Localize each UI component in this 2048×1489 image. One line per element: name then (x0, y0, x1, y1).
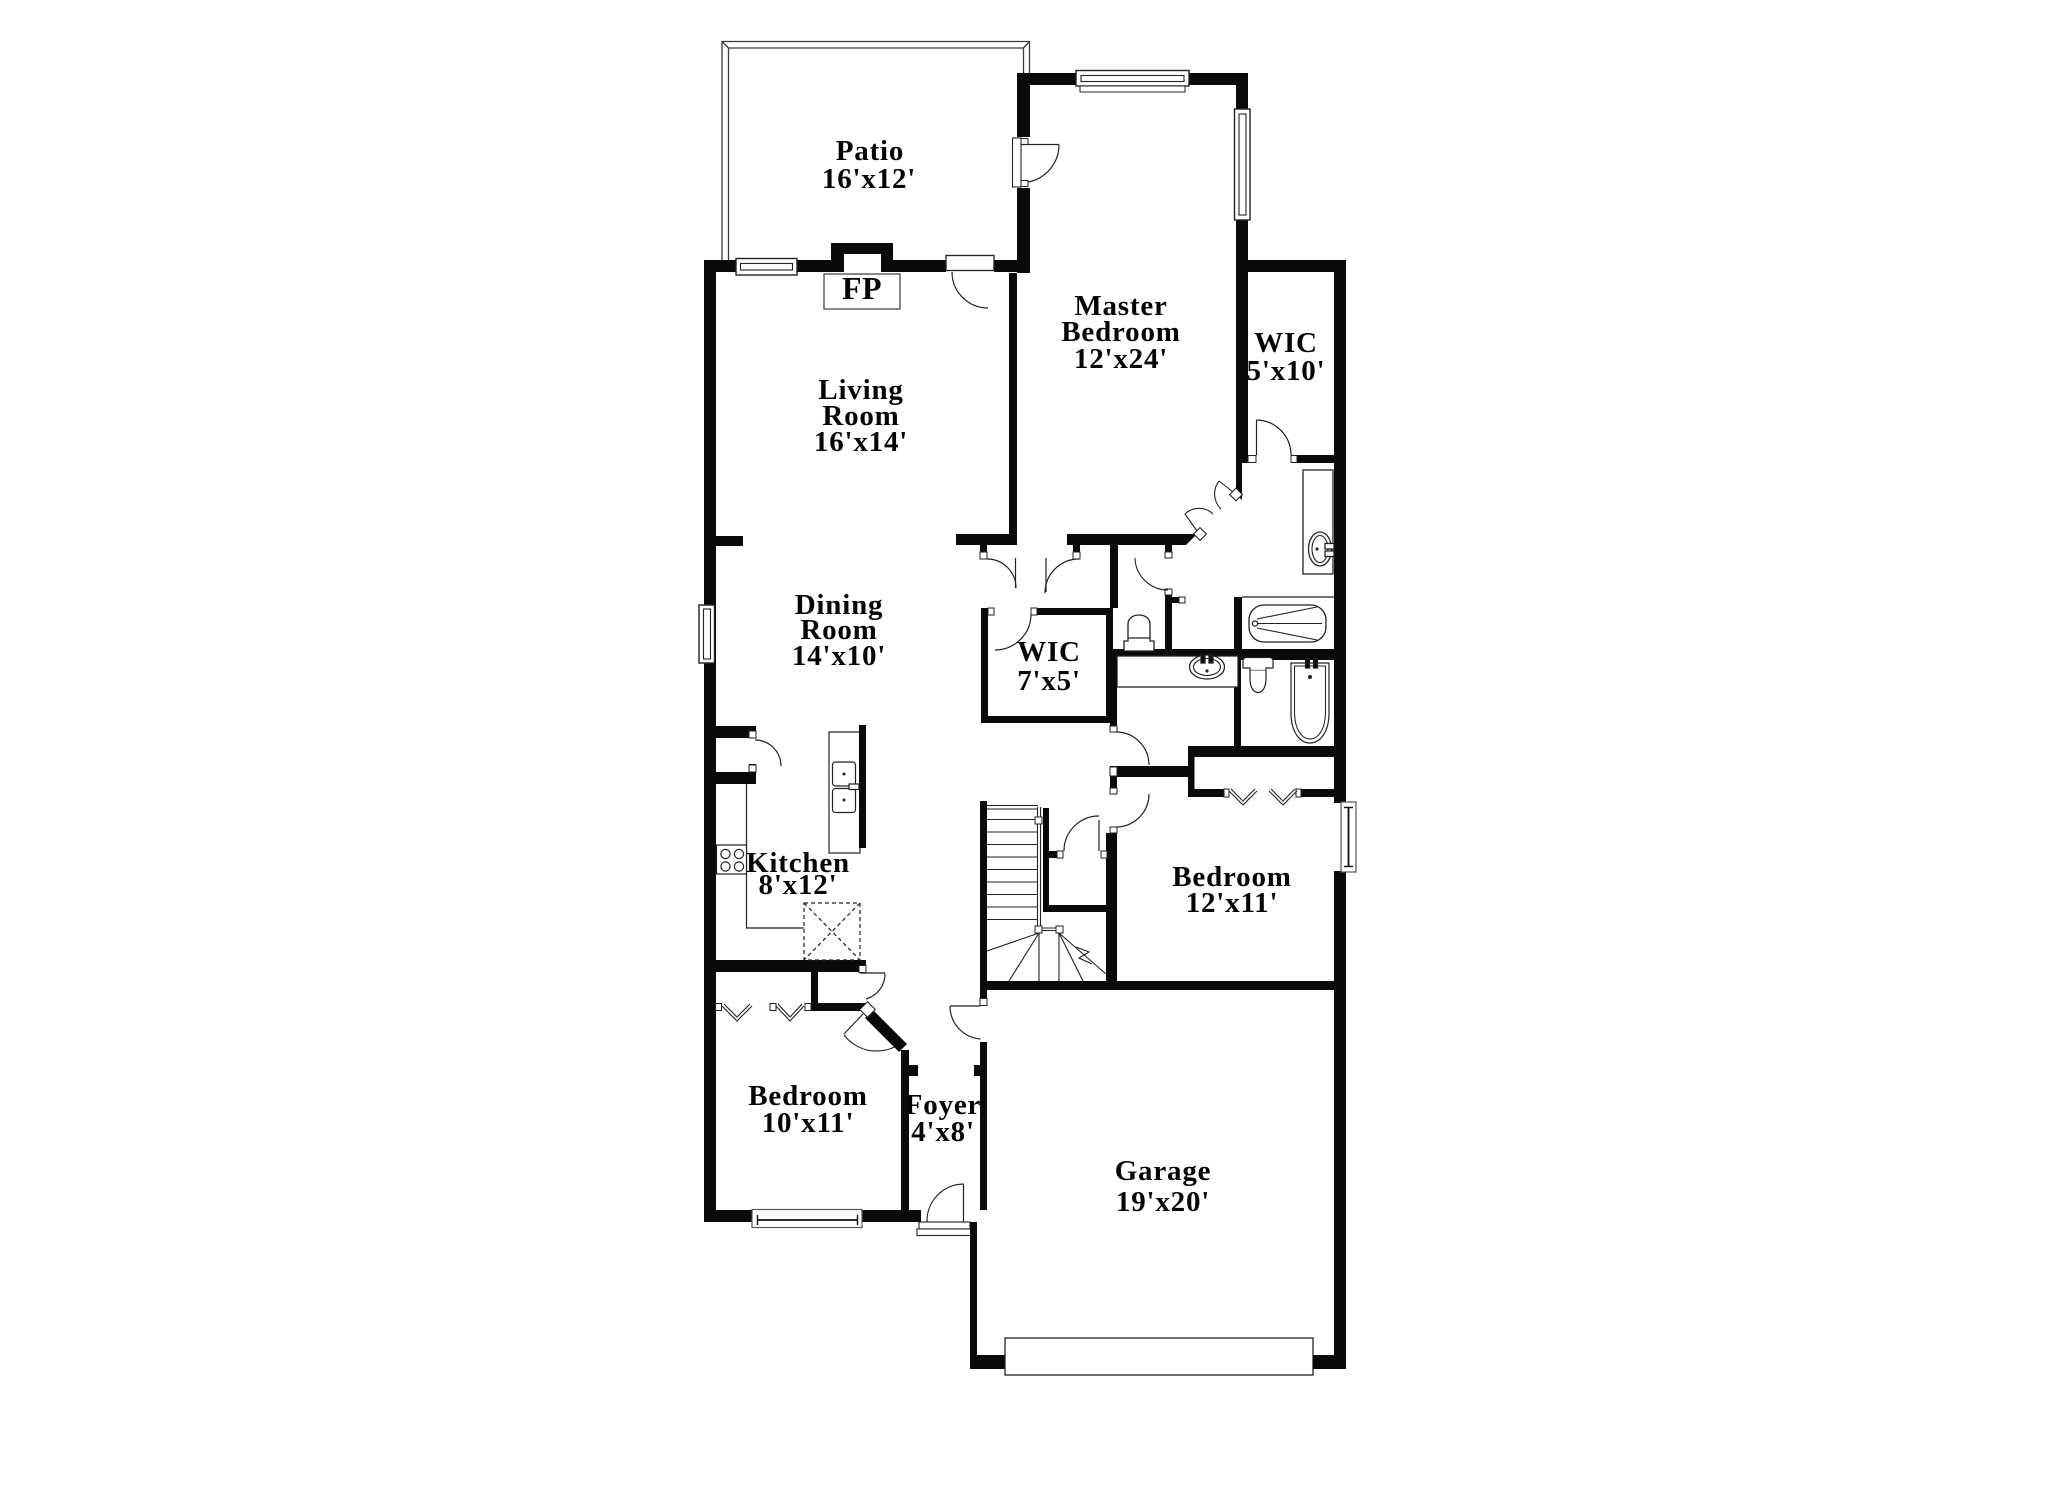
svg-text:10'x11': 10'x11' (762, 1107, 855, 1139)
svg-text:4'x8': 4'x8' (911, 1116, 975, 1148)
svg-text:7'x5': 7'x5' (1017, 665, 1081, 697)
svg-text:FP: FP (842, 270, 882, 306)
svg-text:5'x10': 5'x10' (1247, 355, 1326, 387)
svg-text:WIC: WIC (1017, 636, 1081, 668)
svg-text:19'x20': 19'x20' (1116, 1186, 1210, 1218)
svg-text:14'x10': 14'x10' (792, 640, 886, 672)
svg-text:16'x14': 16'x14' (814, 426, 908, 458)
svg-text:8'x12': 8'x12' (759, 869, 838, 901)
svg-text:16'x12': 16'x12' (822, 163, 916, 195)
svg-text:12'x11': 12'x11' (1186, 887, 1279, 919)
svg-text:12'x24': 12'x24' (1074, 343, 1168, 375)
svg-text:Garage: Garage (1115, 1155, 1212, 1187)
